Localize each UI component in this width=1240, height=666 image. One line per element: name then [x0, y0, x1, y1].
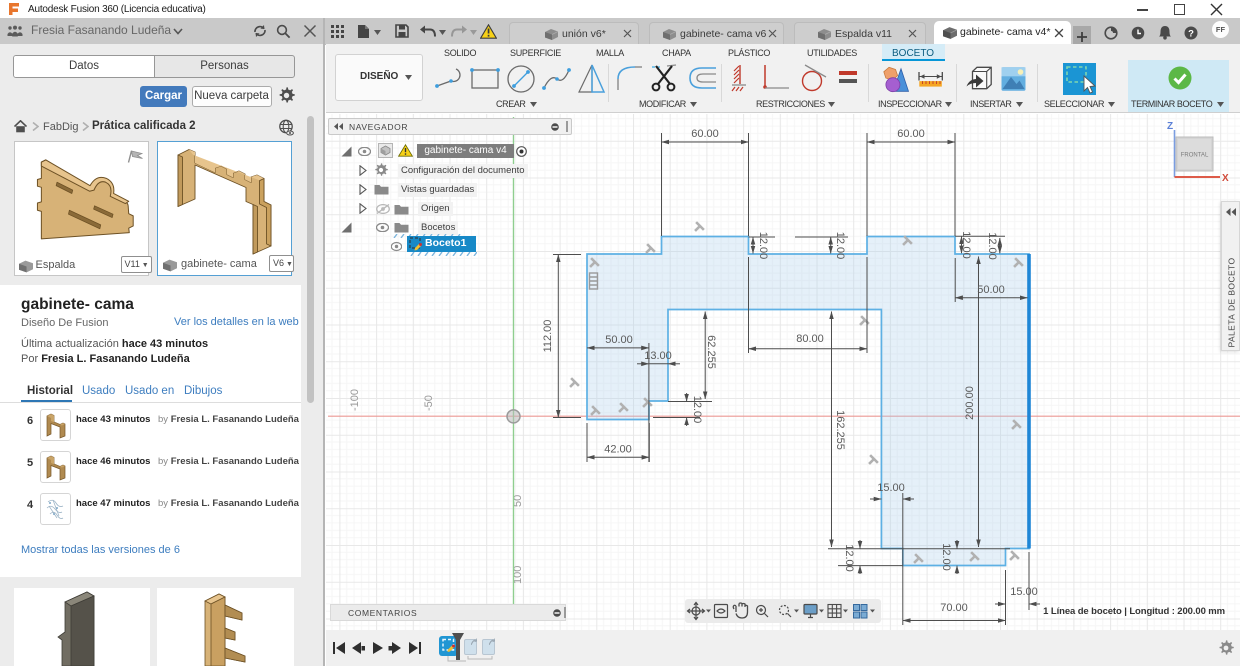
svg-text:FRONTAL: FRONTAL [1181, 153, 1209, 159]
svg-text:X: X [1222, 173, 1229, 184]
svg-text:50.00: 50.00 [977, 284, 1005, 296]
svg-text:80.00: 80.00 [796, 333, 824, 345]
svg-text:200.00: 200.00 [964, 386, 976, 420]
svg-text:12.00: 12.00 [843, 544, 855, 572]
svg-text:60.00: 60.00 [691, 128, 719, 140]
svg-text:12.00: 12.00 [986, 232, 998, 260]
svg-text:?: ? [1188, 28, 1194, 39]
svg-text:12.00: 12.00 [757, 232, 769, 260]
svg-text:12.00: 12.00 [940, 543, 952, 571]
svg-text:12.00: 12.00 [960, 231, 972, 259]
svg-text:112.00: 112.00 [542, 320, 554, 353]
svg-text:62.255: 62.255 [705, 335, 717, 369]
svg-text:50.00: 50.00 [605, 334, 633, 346]
svg-text:15.00: 15.00 [877, 482, 905, 494]
svg-text:70.00: 70.00 [940, 602, 968, 614]
svg-text:Z: Z [1167, 121, 1173, 132]
svg-text:162.255: 162.255 [834, 410, 846, 450]
svg-text:42.00: 42.00 [604, 444, 632, 456]
svg-text:-50: -50 [423, 395, 435, 411]
svg-text:60.00: 60.00 [897, 128, 925, 140]
svg-text:13.00: 13.00 [644, 350, 672, 362]
svg-text:12.00: 12.00 [834, 232, 846, 260]
svg-text:-100: -100 [349, 389, 361, 411]
svg-text:12.00: 12.00 [691, 396, 703, 424]
svg-text:15.00: 15.00 [1010, 586, 1038, 598]
